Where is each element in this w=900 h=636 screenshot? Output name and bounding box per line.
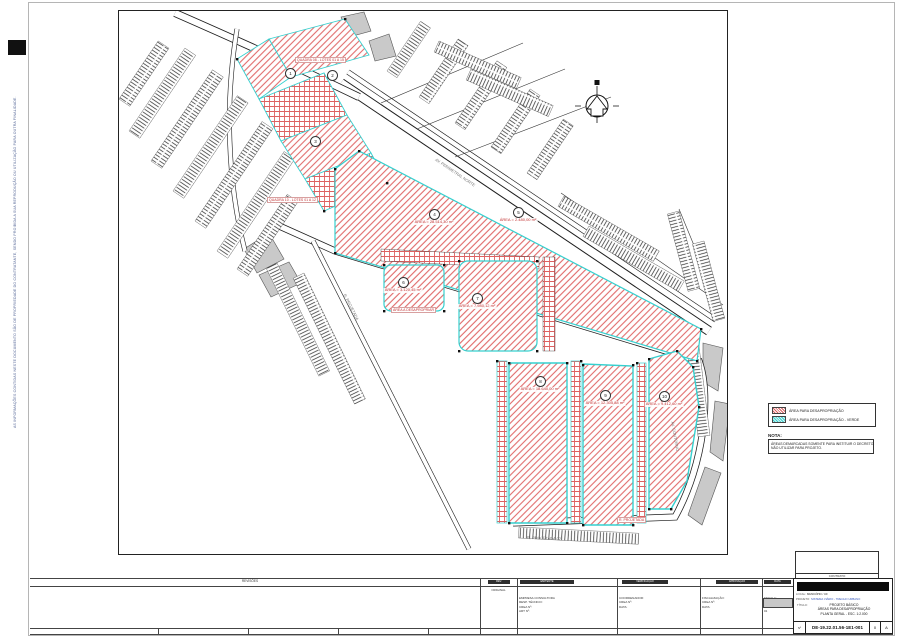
divider bbox=[428, 628, 429, 634]
col-header-emitente: EMITENTE bbox=[520, 580, 574, 585]
legend: ÁREA PARA DESAPROPRIAÇÃO ÁREA PARA DESAP… bbox=[768, 403, 876, 427]
number-label: Nº bbox=[794, 622, 806, 633]
red-hatch-swatch-icon bbox=[772, 407, 786, 414]
col-header-rev: REV. bbox=[488, 580, 510, 585]
company-logo-redacted bbox=[797, 582, 889, 591]
contract-stamp-box: CONTRATO bbox=[795, 551, 879, 579]
drawing-number-row: Nº DE-19.22.01.56-1E1-001 0 A bbox=[794, 621, 892, 633]
drawing-sheet: AS INFORMAÇÕES CONTIDAS NESTE DOCUMENTO … bbox=[0, 0, 900, 635]
footer-line: ART Nº: bbox=[519, 609, 555, 613]
aprovacao-column: FISCALIZAÇÃO:CREA Nº:DATA: bbox=[702, 596, 725, 609]
side-confidentiality-note: AS INFORMAÇÕES CONTIDAS NESTE DOCUMENTO … bbox=[13, 128, 17, 428]
footer-line: DATA: bbox=[702, 605, 725, 609]
verificacao-column: COORDENADOR:CREA Nº:DATA: bbox=[619, 596, 644, 609]
field-value: SISTEMA VIÁRIO - TRECHO URBANO bbox=[811, 597, 860, 601]
divider bbox=[617, 578, 618, 634]
divider bbox=[700, 578, 701, 634]
col-header-aprovacao: APROVAÇÃO bbox=[716, 580, 758, 585]
legend-item: ÁREA PARA DESAPROPRIAÇÃO bbox=[772, 406, 872, 415]
current-rev-cell bbox=[763, 598, 793, 608]
nota-line: NÃO UTILIZAR PARA PROJETO. bbox=[771, 446, 871, 451]
title-lines: PROJETO BÁSICOÁREAS PARA DESAPROPRIAÇÃOP… bbox=[796, 603, 892, 616]
divider bbox=[338, 628, 339, 634]
map-frame: 1234ÁREA = 28.514,30 m²5ÁREA = 2.480,00 … bbox=[118, 10, 728, 555]
title-block: LOCAL: MUNICÍPIO / UF PROJETO: SISTEMA V… bbox=[793, 578, 893, 634]
legend-label: ÁREA PARA DESAPROPRIAÇÃO bbox=[789, 409, 844, 413]
col-header-data: DATA bbox=[764, 580, 791, 585]
rev-cell: A bbox=[881, 622, 892, 633]
nota-title: NOTA: bbox=[768, 433, 782, 438]
revision-strip-title: REVISÕES bbox=[225, 579, 275, 583]
field-label: PROJETO: bbox=[796, 597, 810, 601]
col-header-verificacao: VERIFICAÇÃO bbox=[622, 580, 668, 585]
title-block-field: PROJETO: SISTEMA VIÁRIO - TRECHO URBANO bbox=[796, 597, 892, 601]
revision-original-label: ORIGINAL bbox=[480, 588, 517, 592]
cyan-hatch-swatch-icon bbox=[772, 416, 786, 423]
north-arrow-icon bbox=[575, 80, 619, 123]
divider bbox=[248, 628, 249, 634]
legend-item: ÁREA PARA DESAPROPRIAÇÃO - VERDE bbox=[772, 415, 872, 424]
field-label: LOCAL: bbox=[796, 592, 806, 596]
expropriation-areas bbox=[237, 19, 701, 525]
footer-line: DATA: bbox=[619, 605, 644, 609]
drawing-number: DE-19.22.01.56-1E1-001 bbox=[806, 622, 870, 633]
footer-line: 01 bbox=[764, 609, 777, 613]
rev-cell: 0 bbox=[870, 622, 881, 633]
title-block-field: LOCAL: MUNICÍPIO / UF bbox=[796, 592, 892, 596]
divider bbox=[480, 578, 481, 634]
divider bbox=[158, 628, 159, 634]
field-value: MUNICÍPIO / UF bbox=[807, 592, 828, 596]
emitente-column: EMPRESA CONSULTORARESP. TÉCNICO:CREA Nº:… bbox=[519, 596, 555, 614]
title-line: PLANTA GERAL - ESC. 1:2.000 bbox=[796, 612, 892, 616]
legend-label: ÁREA PARA DESAPROPRIAÇÃO - VERDE bbox=[789, 418, 859, 422]
footer-bottom-band bbox=[30, 628, 893, 635]
site-plan-map bbox=[119, 11, 727, 554]
divider bbox=[517, 578, 518, 634]
nota-box: ÁREAS DEMARCADAS SOMENTE PARA INSTITUIR … bbox=[768, 439, 874, 454]
fold-mark bbox=[8, 40, 26, 55]
